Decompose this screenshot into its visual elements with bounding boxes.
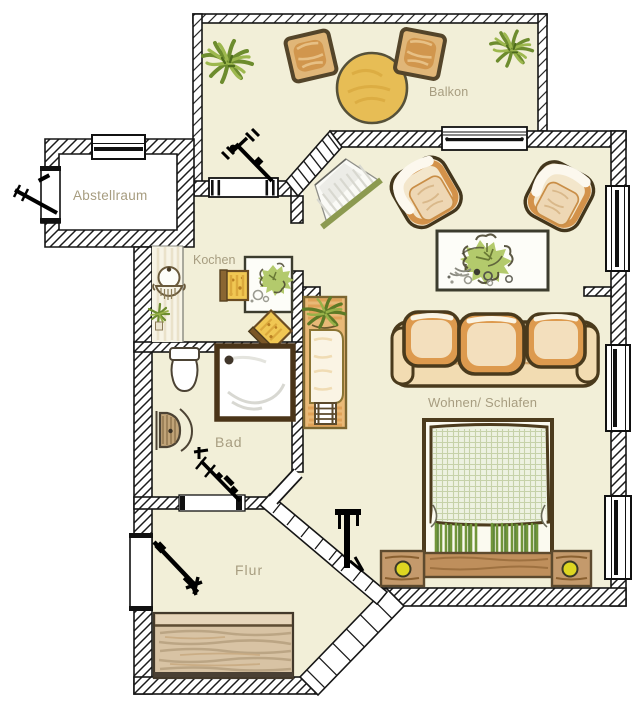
- svg-text:Abstellraum: Abstellraum: [73, 188, 148, 203]
- svg-text:Wohnen/ Schlafen: Wohnen/ Schlafen: [428, 395, 537, 410]
- svg-text:Flur: Flur: [235, 562, 263, 578]
- svg-text:Kochen: Kochen: [193, 253, 235, 267]
- svg-text:Bad: Bad: [215, 434, 242, 450]
- svg-text:Balkon: Balkon: [429, 85, 468, 99]
